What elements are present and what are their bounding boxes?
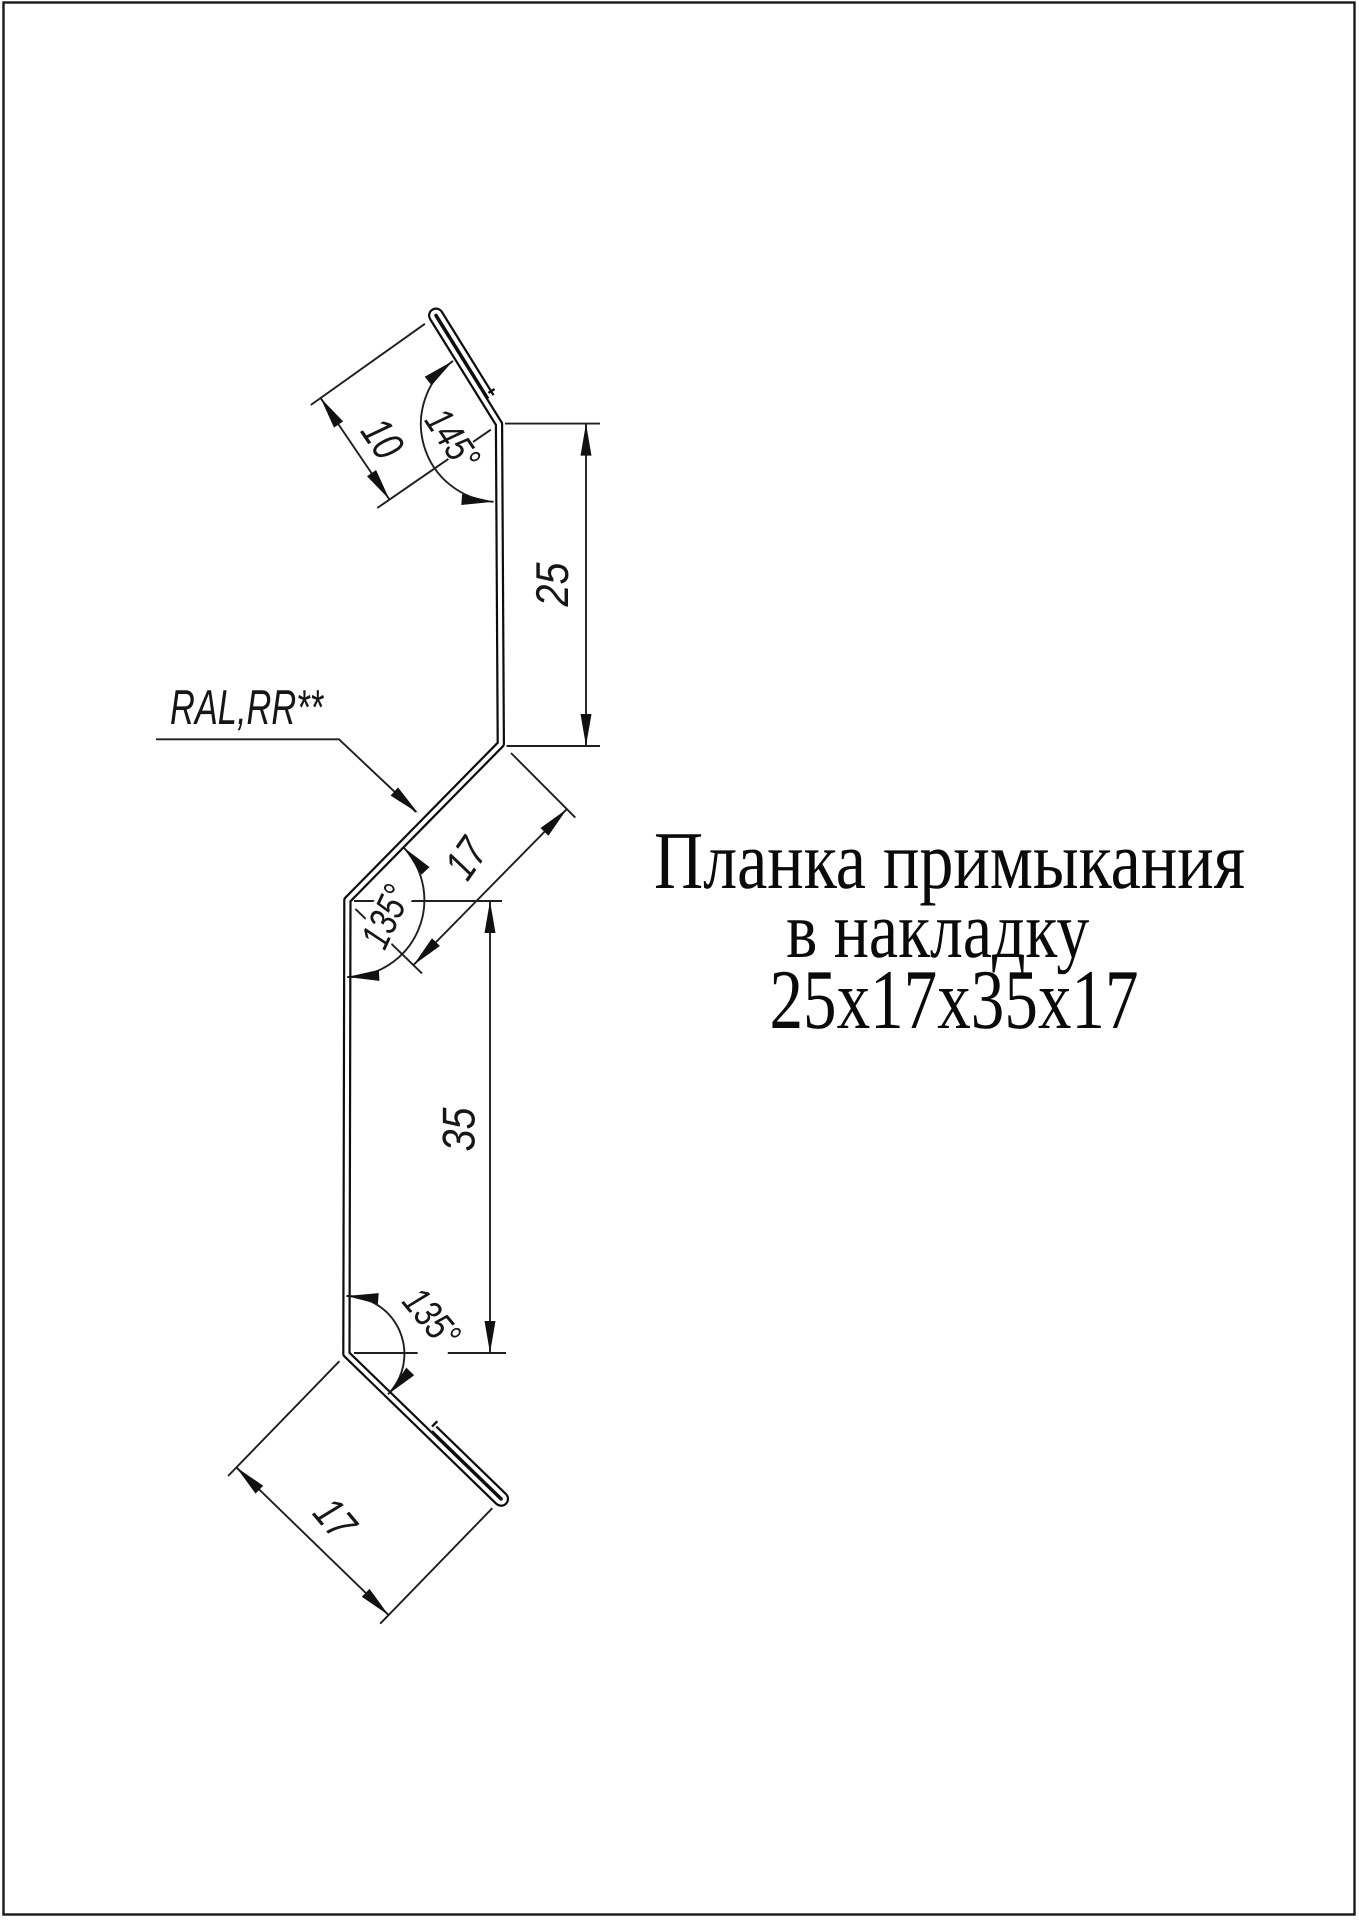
svg-text:35: 35 (433, 1107, 485, 1151)
svg-text:25х17х35х17: 25х17х35х17 (770, 953, 1139, 1047)
svg-text:RAL,RR**: RAL,RR** (170, 681, 324, 735)
svg-text:25: 25 (526, 562, 578, 607)
